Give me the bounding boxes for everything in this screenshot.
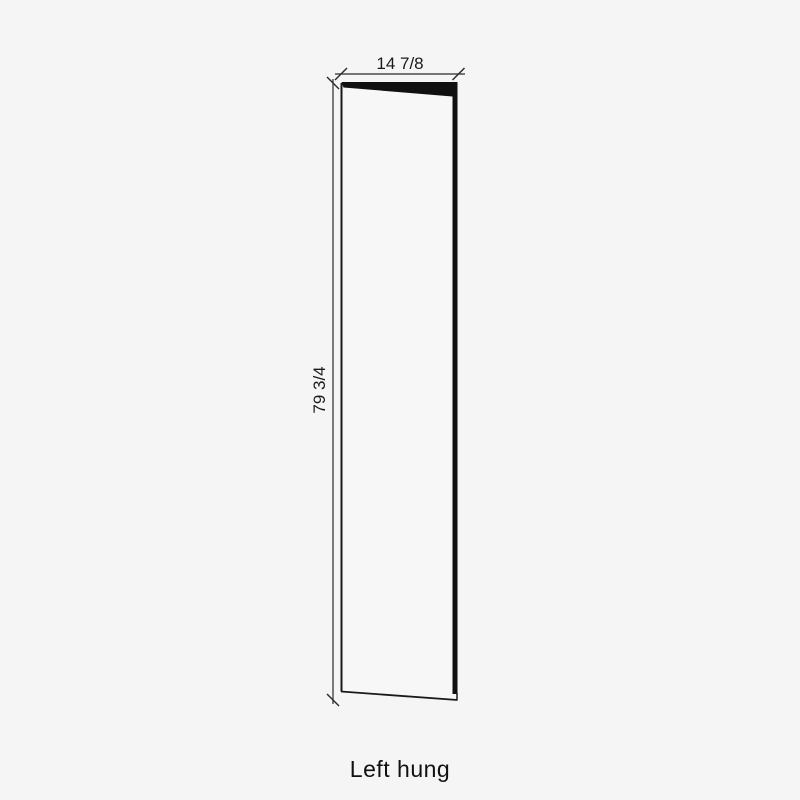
door-drawing-svg: 14 7/8 79 3/4 [0, 0, 800, 800]
door-face [342, 83, 458, 700]
height-dimension: 79 3/4 [310, 77, 339, 706]
height-dimension-label: 79 3/4 [310, 366, 329, 413]
diagram-caption: Left hung [0, 756, 800, 783]
door-diagram: 14 7/8 79 3/4 Left hung [0, 0, 800, 800]
width-dimension: 14 7/8 [335, 54, 465, 80]
width-dimension-label: 14 7/8 [376, 54, 423, 73]
